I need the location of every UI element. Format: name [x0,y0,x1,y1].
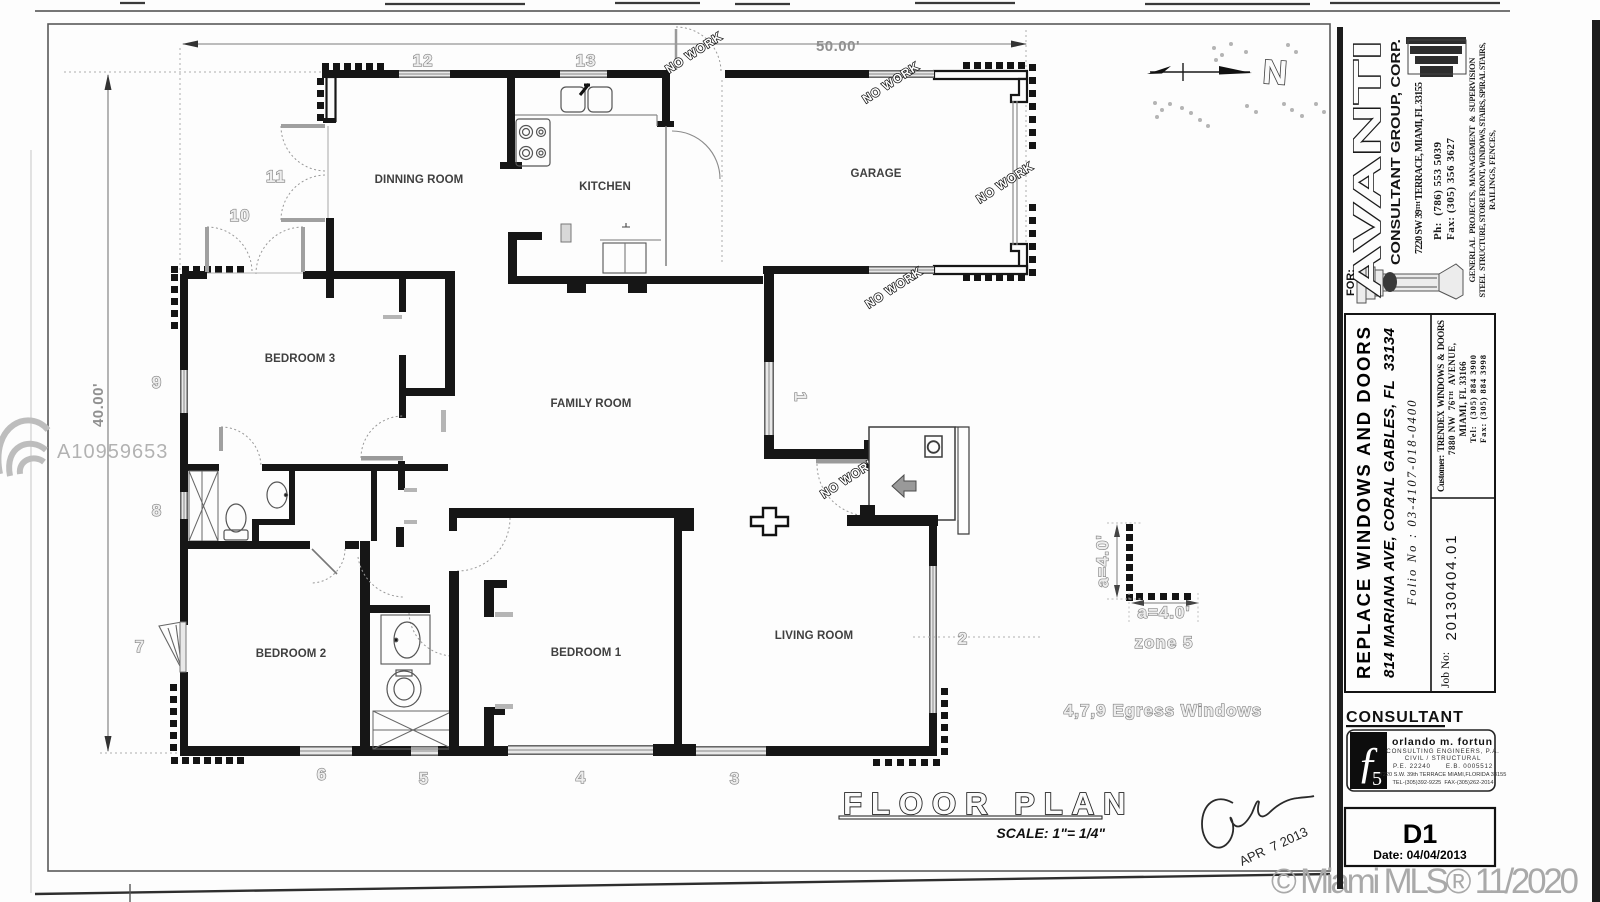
svg-text:CONSULTANT: CONSULTANT [1346,709,1464,726]
svg-text:AVANTI: AVANTI [1347,40,1389,298]
svg-text:BEDROOM 2: BEDROOM 2 [256,648,327,660]
svg-text:N: N [1261,53,1288,93]
svg-text:4,7,9 Egress Windows: 4,7,9 Egress Windows [1064,701,1262,720]
svg-text:Fax: (305) 884 3998: Fax: (305) 884 3998 [1478,355,1488,443]
svg-text:zone 5: zone 5 [1135,633,1194,652]
svg-text:CONSULTANT GROUP, CORP.: CONSULTANT GROUP, CORP. [1388,39,1403,265]
svg-text:11: 11 [266,167,286,186]
svg-text:Ph: (786) 553 5039: Ph: (786) 553 5039 [1432,142,1444,241]
svg-text:© Miami MLS® 11/2020: © Miami MLS® 11/2020 [1271,862,1579,901]
svg-text:A10959653: A10959653 [57,441,168,463]
svg-text:3: 3 [730,769,740,788]
svg-text:Folio No : 03-4107-018-0400: Folio No : 03-4107-018-0400 [1405,400,1419,607]
svg-text:KITCHEN: KITCHEN [579,181,631,193]
svg-text:Job No:: Job No: [1440,652,1452,688]
svg-text:814 MARIANA AVE, CORAL GABLES,: 814 MARIANA AVE, CORAL GABLES, FL 33134 [1381,327,1398,678]
svg-text:5: 5 [419,769,429,788]
svg-text:BEDROOM 3: BEDROOM 3 [265,353,336,365]
svg-text:Tel: (305) 884 3900: Tel: (305) 884 3900 [1468,355,1478,443]
svg-text:LIVING ROOM: LIVING ROOM [775,630,853,642]
svg-text:8: 8 [152,501,162,520]
svg-text:7: 7 [135,637,145,656]
svg-text:10: 10 [230,206,251,225]
svg-text:Fax: (305) 356 3627: Fax: (305) 356 3627 [1445,138,1457,241]
svg-text:RAILINGS, FENCES,: RAILINGS, FENCES, [1487,130,1497,210]
svg-text:orlando m. fortun: orlando m. fortun [1392,736,1492,748]
svg-text:FOR:: FOR: [1345,269,1357,296]
svg-text:13: 13 [576,51,597,70]
svg-text:1: 1 [791,392,810,402]
svg-text:6: 6 [317,765,327,784]
svg-text:BEDROOM 1: BEDROOM 1 [551,647,622,659]
svg-text:STEEL STRUCTURE, STORE FRONT,: STEEL STRUCTURE, STORE FRONT, WINDOWS, S… [1478,43,1487,298]
svg-text:CIVIL / STRUCTURAL: CIVIL / STRUCTURAL [1405,755,1481,762]
svg-text:20130404.01: 20130404.01 [1443,536,1460,641]
svg-text:FAMILY ROOM: FAMILY ROOM [551,398,632,410]
svg-text:D1: D1 [1403,819,1438,849]
svg-text:Customer: TRENDEX WINDOWS &: Customer: TRENDEX WINDOWS & DOORS [1436,320,1446,492]
svg-text:GARAGE: GARAGE [850,168,901,180]
svg-text:7220 S.W. 39th TERRACE MIAMI,F: 7220 S.W. 39th TERRACE MIAMI,FLORIDA 331… [1380,772,1507,778]
svg-text:SCALE: 1"= 1/4": SCALE: 1"= 1/4" [996,825,1105,841]
svg-text:a=4.0': a=4.0' [1137,603,1190,622]
svg-text:a=4.0': a=4.0' [1093,534,1112,587]
svg-text:Date: 04/04/2013: Date: 04/04/2013 [1373,848,1467,862]
svg-text:4: 4 [576,768,586,787]
svg-text:9: 9 [152,373,162,392]
svg-text:TEL-(305)392-9225 FAX-(305)26: TEL-(305)392-9225 FAX-(305)262-2014 [1392,780,1493,786]
svg-text:50.00': 50.00' [816,38,860,55]
svg-text:12: 12 [413,51,434,70]
svg-text:GENERLAL PROJECTS, MANAGEMEN: GENERLAL PROJECTS, MANAGEMENT & SUPERVIS… [1467,57,1477,283]
svg-text:7220 SW 39TH TERRACE, MIAMI, F: 7220 SW 39TH TERRACE, MIAMI, FL 33155 [1414,82,1425,254]
svg-text:CONSULTING ENGINEERS, P.A.: CONSULTING ENGINEERS, P.A. [1386,748,1499,755]
svg-text:DINNING ROOM: DINNING ROOM [375,174,464,186]
svg-text:40.00': 40.00' [90,383,107,427]
svg-text:REPLACE WINDOWS AND DOORS: REPLACE WINDOWS AND DOORS [1353,327,1374,679]
svg-text:MIAMI, FL 33166: MIAMI, FL 33166 [1458,361,1468,437]
svg-text:2: 2 [958,629,968,648]
svg-text:P.E. 22240 E.B. 0005512: P.E. 22240 E.B. 0005512 [1393,763,1493,770]
